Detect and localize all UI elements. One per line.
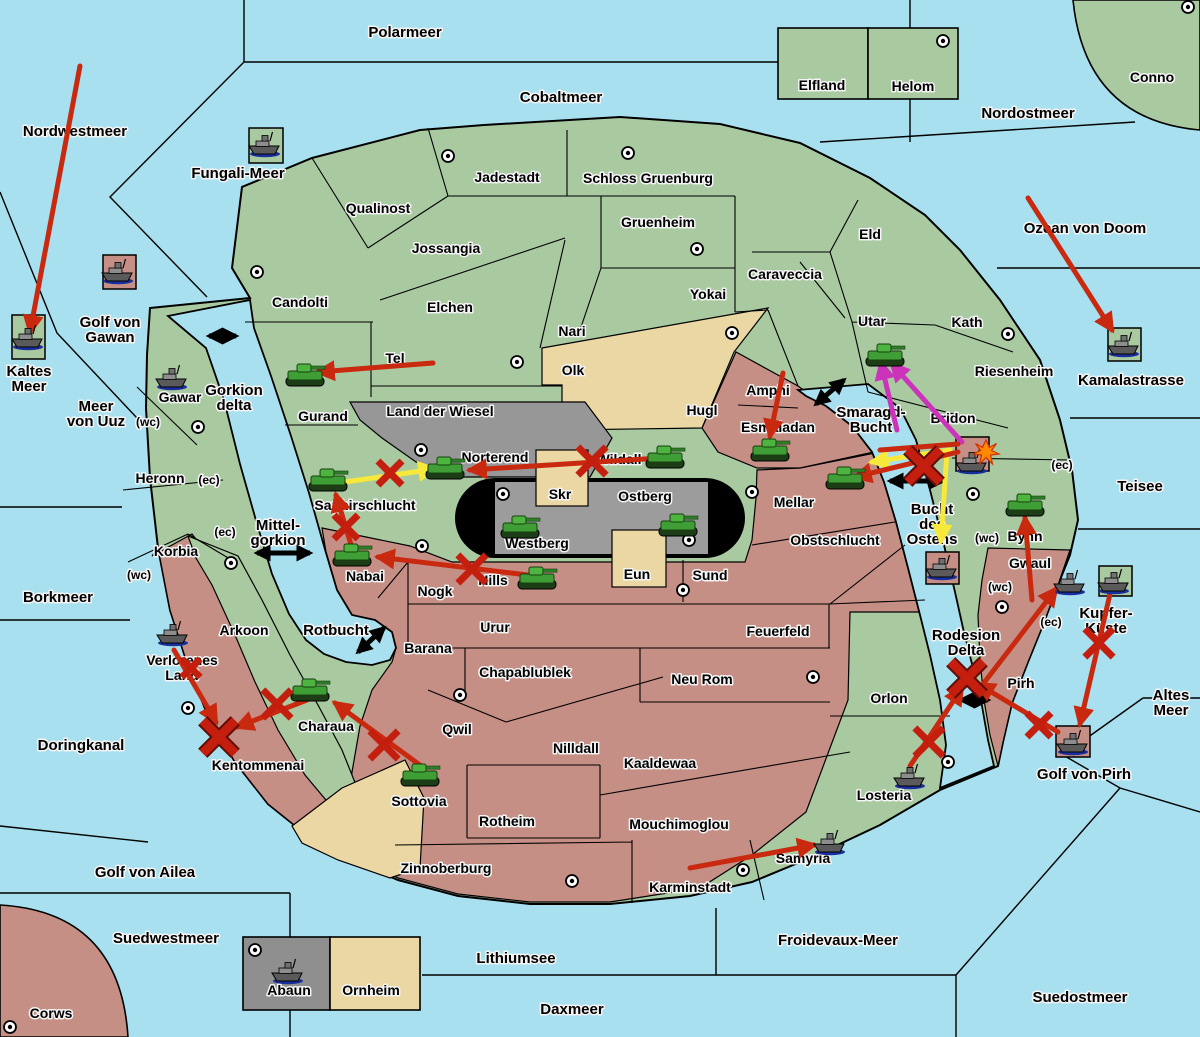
label-urur: Urur <box>480 619 510 635</box>
label-orlon: Orlon <box>870 690 907 706</box>
label-land-der-wiesel: Land der Wiesel <box>386 403 493 419</box>
label-qualinost: Qualinost <box>346 200 411 216</box>
city-marker-icon <box>746 486 758 498</box>
label-kentommenai: Kentommenai <box>212 757 305 773</box>
label-kath: Kath <box>951 314 982 330</box>
city-marker-icon <box>996 601 1008 613</box>
label-abaun: Abaun <box>267 982 311 998</box>
label-nordostmeer: Nordostmeer <box>981 105 1075 122</box>
label-karminstadt: Karminstadt <box>649 879 731 895</box>
label-conno: Conno <box>1130 69 1174 85</box>
label-esmaladan: Esmaladan <box>741 419 815 435</box>
label-golf-von-ailea: Golf von Ailea <box>95 864 196 881</box>
label-mellar: Mellar <box>774 494 815 510</box>
label-fungali-meer: Fungali-Meer <box>191 165 285 182</box>
city-marker-icon <box>416 540 428 552</box>
label-rotheim: Rotheim <box>479 813 535 829</box>
coast-tag: (ec) <box>198 473 219 487</box>
label-eld: Eld <box>859 226 881 242</box>
city-marker-icon <box>942 756 954 768</box>
label-feuerfeld: Feuerfeld <box>746 623 809 639</box>
city-marker-icon <box>691 243 703 255</box>
label-losteria: Losteria <box>857 787 912 803</box>
coast-tag: (wc) <box>988 580 1012 594</box>
coast-tag: (wc) <box>975 531 999 545</box>
label-corws: Corws <box>30 1005 73 1021</box>
label-obstschlucht: Obstschlucht <box>790 532 880 548</box>
city-marker-icon <box>225 557 237 569</box>
city-marker-icon <box>1002 328 1014 340</box>
label-kamalastrasse: Kamalastrasse <box>1078 372 1184 389</box>
city-marker-icon <box>807 671 819 683</box>
label-olk: Olk <box>562 362 585 378</box>
city-marker-icon <box>415 444 427 456</box>
label-froidevaux-meer: Froidevaux-Meer <box>778 932 898 949</box>
label-cobaltmeer: Cobaltmeer <box>520 89 603 106</box>
label-arkoon: Arkoon <box>220 622 269 638</box>
label-hugl: Hugl <box>686 402 717 418</box>
label-polarmeer: Polarmeer <box>368 24 442 41</box>
label-kaaldewaa: Kaaldewaa <box>624 755 697 771</box>
label-charaua: Charaua <box>298 718 354 734</box>
label-chapablublek: Chapablublek <box>479 664 571 680</box>
city-marker-icon <box>454 689 466 701</box>
label-teisee: Teisee <box>1117 478 1163 495</box>
label-qwil: Qwil <box>442 721 472 737</box>
label-barana: Barana <box>404 640 452 656</box>
label-sottovia: Sottovia <box>391 793 446 809</box>
label-eun: Eun <box>624 566 650 582</box>
city-marker-icon <box>677 584 689 596</box>
label-rotbucht: Rotbucht <box>303 622 369 639</box>
label-helom: Helom <box>892 78 935 94</box>
label-elchen: Elchen <box>427 299 473 315</box>
label-nilldall: Nilldall <box>553 740 599 756</box>
label-daxmeer: Daxmeer <box>540 1001 604 1018</box>
label-gawar: Gawar <box>159 389 202 405</box>
label-borkmeer: Borkmeer <box>23 589 93 606</box>
label-kaltes-meer: KaltesMeer <box>6 363 51 395</box>
label-golf-von-pirh: Golf von Pirh <box>1037 766 1131 783</box>
label-sund: Sund <box>693 567 728 583</box>
city-marker-icon <box>497 488 509 500</box>
label-nordwestmeer: Nordwestmeer <box>23 123 127 140</box>
label-gurand: Gurand <box>298 408 348 424</box>
coast-tag: (ec) <box>1051 458 1072 472</box>
label-korbia: Korbia <box>154 543 199 559</box>
label-gruenheim: Gruenheim <box>621 214 695 230</box>
label-elfland: Elfland <box>799 77 846 93</box>
city-marker-icon <box>511 356 523 368</box>
label-caraveccia: Caraveccia <box>748 266 822 282</box>
label-mittel-gorkion: Mittel-gorkion <box>251 517 306 549</box>
city-marker-icon <box>566 875 578 887</box>
label-pirh: Pirh <box>1007 675 1034 691</box>
label-neu-rom: Neu Rom <box>671 671 732 687</box>
label-skr: Skr <box>549 486 572 502</box>
label-doringkanal: Doringkanal <box>38 737 125 754</box>
label-jadestadt: Jadestadt <box>474 169 540 185</box>
label-riesenheim: Riesenheim <box>975 363 1054 379</box>
coast-tag: (ec) <box>1040 615 1061 629</box>
label-saphirschlucht: Saphirschlucht <box>314 497 415 513</box>
city-marker-icon <box>726 327 738 339</box>
label-zinnoberburg: Zinnoberburg <box>401 860 492 876</box>
city-marker-icon <box>442 150 454 162</box>
label-suedwestmeer: Suedwestmeer <box>113 930 219 947</box>
coast-tag: (ec) <box>214 525 235 539</box>
label-lithiumsee: Lithiumsee <box>476 950 555 967</box>
label-amphi: Amphi <box>746 382 790 398</box>
coast-tag: (wc) <box>127 568 151 582</box>
city-marker-icon <box>249 944 261 956</box>
city-marker-icon <box>182 702 194 714</box>
region-ornheim[interactable] <box>330 937 420 1010</box>
label-heronn: Heronn <box>136 470 185 486</box>
label-mouchimoglou: Mouchimoglou <box>629 816 729 832</box>
city-marker-icon <box>1182 1 1194 13</box>
label-jossangia: Jossangia <box>412 240 481 256</box>
label-norterend: Norterend <box>462 449 529 465</box>
wargame-map: PolarmeerCobaltmeerNordwestmeerFungali-M… <box>0 0 1200 1037</box>
label-nabai: Nabai <box>346 568 384 584</box>
label-schloss-gruenburg: Schloss Gruenburg <box>583 170 713 186</box>
city-marker-icon <box>192 421 204 433</box>
city-marker-icon <box>967 488 979 500</box>
label-golf-von-gawan: Golf vonGawan <box>80 314 141 346</box>
label-ostberg: Ostberg <box>618 488 672 504</box>
city-marker-icon <box>4 1021 16 1033</box>
city-marker-icon <box>622 147 634 159</box>
label-nari: Nari <box>558 323 585 339</box>
label-yokai: Yokai <box>690 286 726 302</box>
label-utar: Utar <box>858 313 887 329</box>
city-marker-icon <box>251 266 263 278</box>
label-suedostmeer: Suedostmeer <box>1032 989 1127 1006</box>
city-marker-icon <box>937 35 949 47</box>
label-altes-meer: AltesMeer <box>1153 687 1190 719</box>
label-candolti: Candolti <box>272 294 328 310</box>
city-marker-icon <box>737 864 749 876</box>
label-ornheim: Ornheim <box>342 982 400 998</box>
coast-tag: (wc) <box>136 415 160 429</box>
label-nogk: Nogk <box>418 583 453 599</box>
